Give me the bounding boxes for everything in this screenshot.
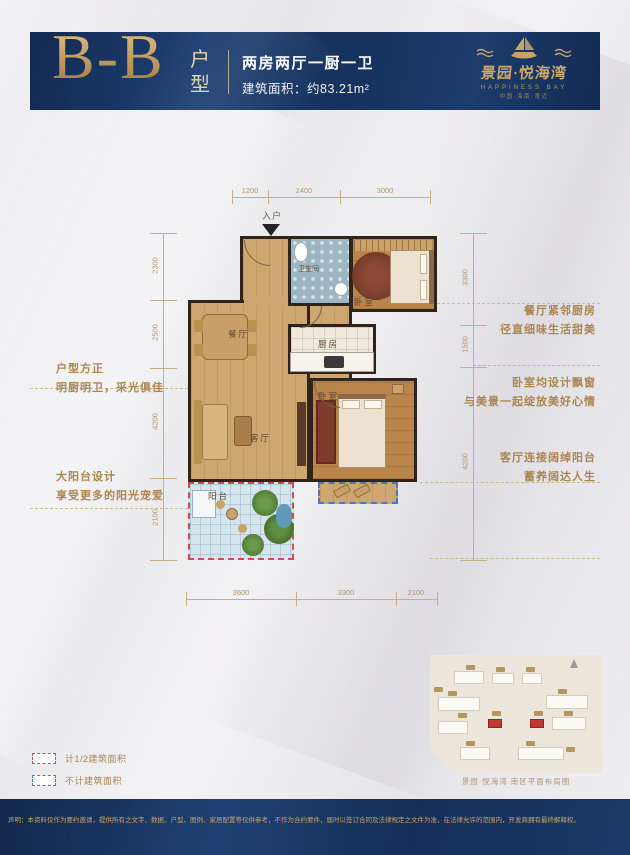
- dining-chair: [248, 320, 257, 332]
- header-divider: [228, 50, 229, 94]
- site-building: [546, 695, 588, 709]
- room-label-bath: 卫生间: [298, 264, 319, 274]
- unit-spec: 两房两厅一厨一卫: [242, 52, 374, 73]
- site-building: [438, 721, 468, 734]
- building-label-chip: [448, 691, 457, 696]
- site-building: [454, 671, 484, 684]
- building-label-chip: [566, 747, 575, 752]
- site-building: [552, 717, 586, 730]
- guide-line: [473, 365, 600, 366]
- building-label-chip: [466, 741, 475, 746]
- toilet: [294, 242, 308, 262]
- dim-bottom-2: 3300: [332, 588, 360, 597]
- building-label-chip: [496, 667, 505, 672]
- balcony-table: [226, 508, 238, 520]
- site-plan: [430, 655, 602, 773]
- annotation-right-1: 餐厅紧邻厨房 径直细味生活甜美: [460, 302, 596, 339]
- sink: [334, 282, 348, 296]
- site-building: [518, 747, 564, 760]
- unit-label: 户型: [190, 48, 212, 98]
- pillow: [342, 400, 360, 409]
- unit-code: B-B: [52, 32, 165, 94]
- dim-top-3: 3000: [371, 186, 399, 195]
- dim-tick: [232, 190, 233, 204]
- annotation-right-3: 客厅连接阔绰阳台 蓄养阔达人生: [460, 449, 596, 486]
- dim-tick: [268, 190, 269, 204]
- building-label-chip: [564, 711, 573, 716]
- annotation-line: 户型方正: [56, 360, 164, 379]
- balcony-chair: [238, 524, 247, 533]
- dim-tick: [296, 592, 297, 606]
- building-label-chip: [466, 665, 475, 670]
- annotation-right-2: 卧室均设计飘窗 与美景一起绽放美好心情: [460, 374, 596, 411]
- brand-name-en: HAPPINESS BAY: [462, 85, 586, 91]
- building-label-chip: [526, 667, 535, 672]
- dining-chair: [194, 320, 203, 332]
- building-label-chip: [434, 687, 443, 692]
- site-plan-caption: 景园·悦海湾 南区平面布局图: [430, 776, 602, 787]
- dim-top-2: 2400: [290, 186, 318, 195]
- bedroom2-headboard: [338, 394, 386, 399]
- dim-left-1: 2300: [151, 252, 160, 280]
- dim-tick: [460, 233, 487, 234]
- tv-cabinet: [297, 402, 306, 466]
- dim-bottom-3: 2100: [402, 588, 430, 597]
- building-label-chip: [492, 711, 501, 716]
- pillow: [420, 280, 427, 300]
- guide-line: [30, 508, 188, 509]
- annotation-line: 与美景一起绽放美好心情: [460, 393, 596, 412]
- annotation-left-2: 大阳台设计 享受更多的阳光宠爱: [56, 468, 164, 505]
- building-label-chip: [534, 711, 543, 716]
- dim-tick: [186, 592, 187, 606]
- dim-line-top: [232, 197, 430, 198]
- header-band: B-B 户型 两房两厅一厨一卫 建筑面积：约83.21m² 景: [30, 32, 600, 110]
- building-label-chip: [458, 713, 467, 718]
- stove: [324, 356, 344, 368]
- dim-tick: [150, 233, 177, 234]
- pillow: [420, 254, 427, 274]
- half-area-swatch: [32, 753, 56, 764]
- brand-logo: 景园·悦海湾 HAPPINESS BAY 中国·海南·澄迈: [462, 36, 586, 100]
- legend-label: 不计建筑面积: [65, 774, 122, 787]
- annotation-line: 明厨明卫，采光俱佳: [56, 379, 164, 398]
- site-building: [492, 673, 514, 684]
- sailboat-icon: [475, 36, 573, 62]
- annotation-line: 径直细味生活甜美: [460, 321, 596, 340]
- entry-arrow-icon: [262, 224, 280, 236]
- unit-area: 建筑面积：约83.21m²: [242, 78, 369, 97]
- dining-chair: [194, 344, 203, 356]
- bedroom2-rug: [316, 400, 336, 464]
- dim-tick: [460, 560, 487, 561]
- dim-tick: [396, 592, 397, 606]
- annotation-line: 客厅连接阔绰阳台: [460, 449, 596, 468]
- brochure-page: B-B 户型 两房两厅一厨一卫 建筑面积：约83.21m² 景: [0, 0, 630, 855]
- building-label-chip: [526, 741, 535, 746]
- dim-tick: [150, 300, 177, 301]
- legend-excluded-area: 不计建筑面积: [32, 774, 122, 787]
- nightstand: [392, 384, 404, 394]
- sofa-seat: [202, 404, 228, 460]
- legend-label: 计1/2建筑面积: [65, 752, 127, 765]
- room-label-bedroom2: 卧室: [318, 390, 339, 402]
- site-building: [438, 697, 480, 711]
- disclaimer-text: 声明：本资料仅作为要约邀请，提供所有之文字、数据、户型、图例、家居配置等仅供参考…: [8, 814, 624, 824]
- room-label-kitchen: 厨房: [318, 338, 339, 350]
- dim-tick: [340, 190, 341, 204]
- building-label-chip: [558, 689, 567, 694]
- site-building: [460, 747, 490, 760]
- bedroom1-bed: [390, 250, 434, 304]
- dim-tick: [437, 592, 438, 606]
- room-label-bedroom1: 卧室: [354, 296, 375, 308]
- guide-line: [430, 558, 600, 559]
- annotation-line: 享受更多的阳光宠爱: [56, 487, 164, 506]
- dim-left-2: 2500: [151, 319, 160, 347]
- sofa: [194, 400, 202, 464]
- annotation-line: 餐厅紧邻厨房: [460, 302, 596, 321]
- dim-right-1: 3300: [461, 264, 470, 292]
- pond: [276, 504, 292, 528]
- room-label-dining: 餐厅: [228, 328, 249, 340]
- dim-bottom-1: 3600: [227, 588, 255, 597]
- annotation-line: 蓄养阔达人生: [460, 468, 596, 487]
- annotation-line: 卧室均设计飘窗: [460, 374, 596, 393]
- footer-band: 声明：本资料仅作为要约邀请，提供所有之文字、数据、户型、图例、家居配置等仅供参考…: [0, 799, 630, 855]
- plant: [252, 490, 278, 516]
- pillow: [364, 400, 382, 409]
- room-label-living: 客厅: [250, 432, 271, 444]
- dim-tick: [460, 367, 487, 368]
- site-building-highlight: [488, 719, 502, 728]
- site-building: [522, 673, 542, 684]
- dim-tick: [430, 190, 431, 204]
- brand-name: 景园·悦海湾: [461, 62, 587, 83]
- annotation-left-1: 户型方正 明厨明卫，采光俱佳: [56, 360, 164, 397]
- room-label-balcony: 阳台: [208, 490, 229, 502]
- north-arrow-icon: [570, 659, 578, 668]
- dim-line-bottom: [186, 599, 437, 600]
- legend-half-area: 计1/2建筑面积: [32, 752, 127, 765]
- brand-region: 中国·海南·澄迈: [462, 92, 586, 100]
- excluded-area-swatch: [32, 775, 56, 786]
- annotation-line: 大阳台设计: [56, 468, 164, 487]
- dim-top-1: 1200: [236, 186, 264, 195]
- plant: [242, 534, 264, 556]
- site-building-highlight: [530, 719, 544, 728]
- dim-left-3: 4200: [151, 408, 160, 436]
- dining-chair: [248, 344, 257, 356]
- dim-tick: [150, 560, 177, 561]
- bedroom1-headboard: [429, 250, 434, 304]
- entry-label: 入户: [262, 209, 282, 222]
